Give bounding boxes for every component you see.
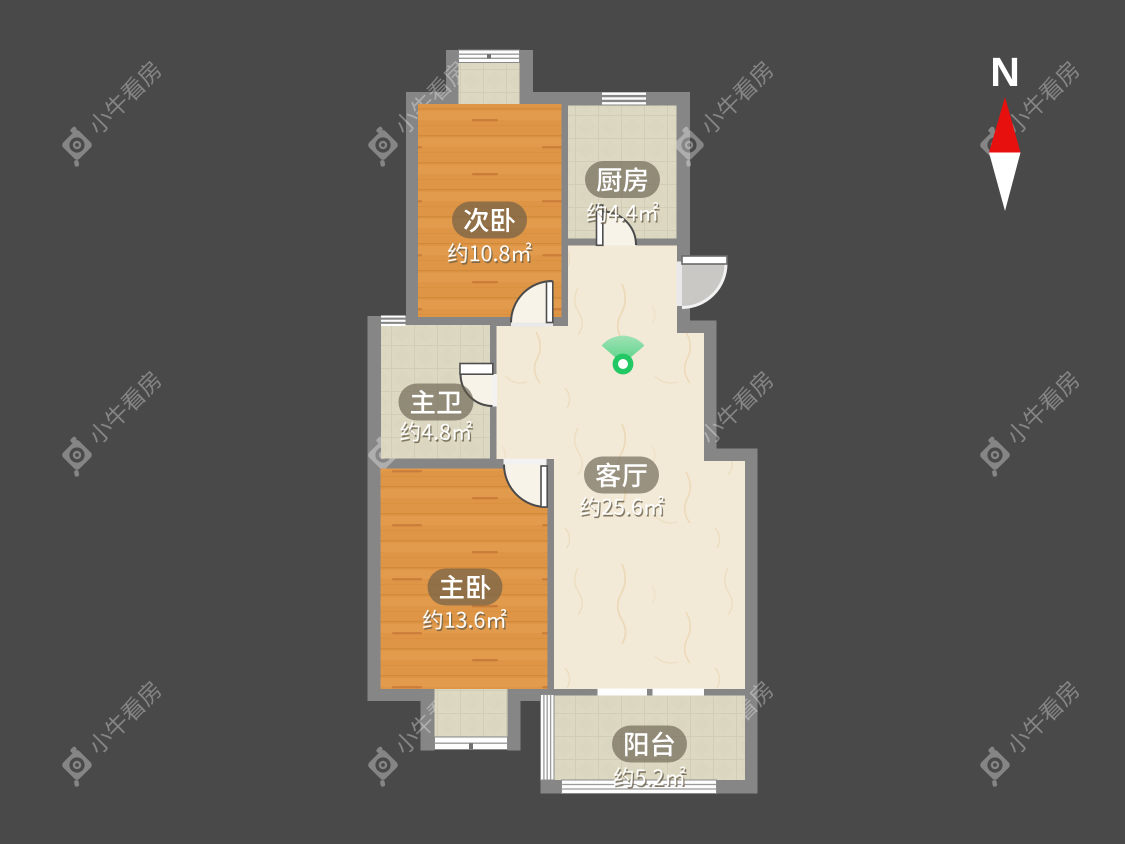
svg-text:N: N — [990, 49, 1020, 95]
